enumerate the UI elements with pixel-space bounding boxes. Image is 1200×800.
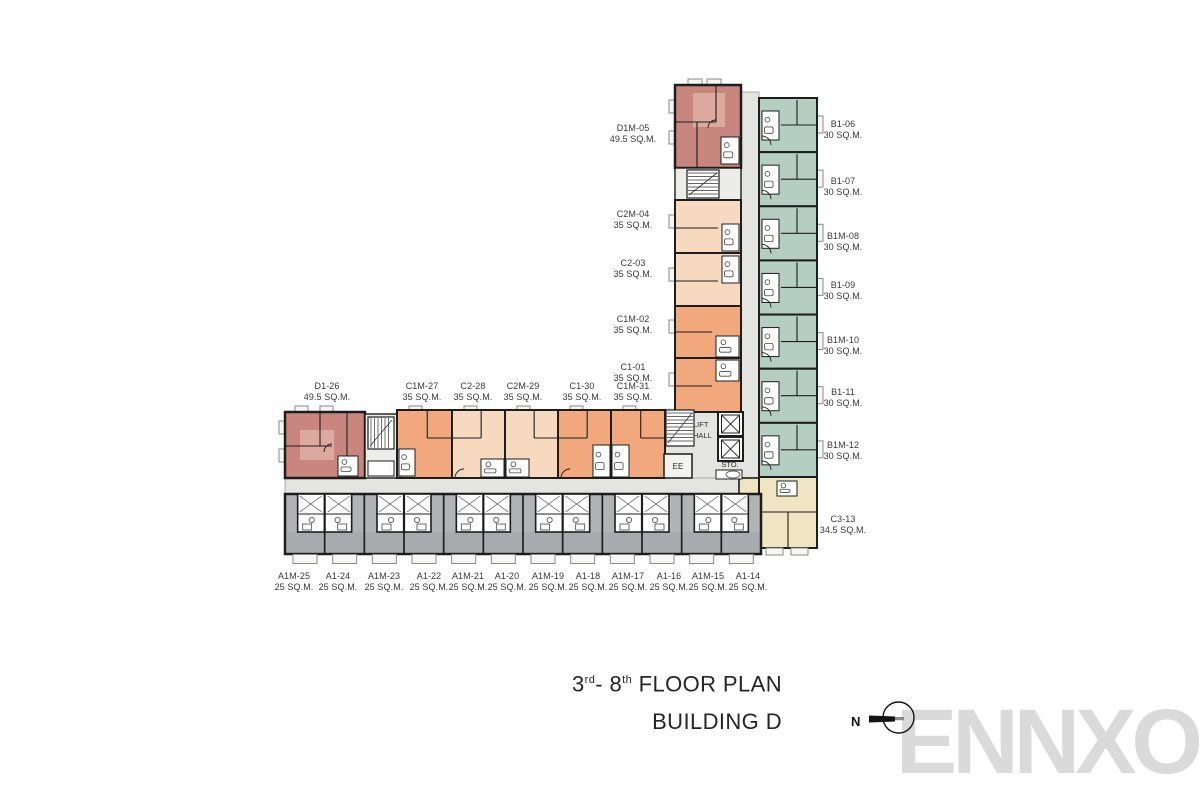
unit-name: C1M-31 <box>597 381 669 392</box>
unit-label: B1M-1230 SQ.M. <box>807 440 879 462</box>
unit-name: B1-09 <box>807 280 879 291</box>
page-title: 3rd- 8th FLOOR PLAN <box>572 668 782 696</box>
north-arrow-icon <box>845 698 923 740</box>
unit-label: B1-0930 SQ.M. <box>807 280 879 302</box>
unit-name: C2-03 <box>597 258 669 269</box>
unit-size: 25 SQ.M. <box>712 582 784 593</box>
unit-size: 30 SQ.M. <box>807 130 879 141</box>
unit-size: 35 SQ.M. <box>597 269 669 280</box>
unit-size: 35 SQ.M. <box>597 220 669 231</box>
lift-hall-line1: LIFT <box>693 419 712 430</box>
unit-label: B1-1130 SQ.M. <box>807 387 879 409</box>
unit-size: 30 SQ.M. <box>807 242 879 253</box>
unit-name: B1M-10 <box>807 335 879 346</box>
unit-size: 30 SQ.M. <box>807 451 879 462</box>
unit-size: 30 SQ.M. <box>807 291 879 302</box>
unit-size: 49.5 SQ.M. <box>291 392 363 403</box>
unit-name: C1-01 <box>597 362 669 373</box>
unit-name: D1-26 <box>291 381 363 392</box>
unit-name: B1-07 <box>807 176 879 187</box>
unit-name: C3-13 <box>807 514 879 525</box>
unit-name: A1-14 <box>712 571 784 582</box>
unit-size: 49.5 SQ.M. <box>597 134 669 145</box>
unit-name: B1-06 <box>807 119 879 130</box>
unit-label: D1M-0549.5 SQ.M. <box>597 123 669 145</box>
unit-name: B1-11 <box>807 387 879 398</box>
unit-label: B1-0730 SQ.M. <box>807 176 879 198</box>
unit-label: C2M-0435 SQ.M. <box>597 209 669 231</box>
unit-label: C1M-0235 SQ.M. <box>597 314 669 336</box>
unit-name: C1M-02 <box>597 314 669 325</box>
unit-label: B1-0630 SQ.M. <box>807 119 879 141</box>
unit-size: 30 SQ.M. <box>807 187 879 198</box>
unit-size: 35 SQ.M. <box>597 325 669 336</box>
floor-plan-page: ENNXO D1M-0549.5 SQ.M.C2M-0435 SQ.M.C2-0… <box>0 0 1200 800</box>
building-plan <box>279 79 823 564</box>
lift-hall-label: LIFT HALL <box>693 419 712 441</box>
unit-name: C2M-04 <box>597 209 669 220</box>
unit-label: A1-1425 SQ.M. <box>712 571 784 593</box>
title-block: 3rd- 8th FLOOR PLAN BUILDING D <box>572 668 782 734</box>
unit-label: C2-0335 SQ.M. <box>597 258 669 280</box>
unit-size: 34.5 SQ.M. <box>807 525 879 536</box>
ee-room-label: EE <box>666 461 690 472</box>
unit-label: C3-1334.5 SQ.M. <box>807 514 879 536</box>
unit-size: 30 SQ.M. <box>807 398 879 409</box>
unit-label: B1M-1030 SQ.M. <box>807 335 879 357</box>
storage-label: STO. <box>716 459 744 470</box>
unit-label: B1M-0830 SQ.M. <box>807 231 879 253</box>
building-name: BUILDING D <box>572 710 782 734</box>
unit-name: D1M-05 <box>597 123 669 134</box>
unit-name: B1M-12 <box>807 440 879 451</box>
unit-name: B1M-08 <box>807 231 879 242</box>
unit-size: 35 SQ.M. <box>597 392 669 403</box>
unit-size: 30 SQ.M. <box>807 346 879 357</box>
unit-label: D1-2649.5 SQ.M. <box>291 381 363 403</box>
lift-hall-line2: HALL <box>693 430 712 441</box>
unit-label: C1M-3135 SQ.M. <box>597 381 669 403</box>
